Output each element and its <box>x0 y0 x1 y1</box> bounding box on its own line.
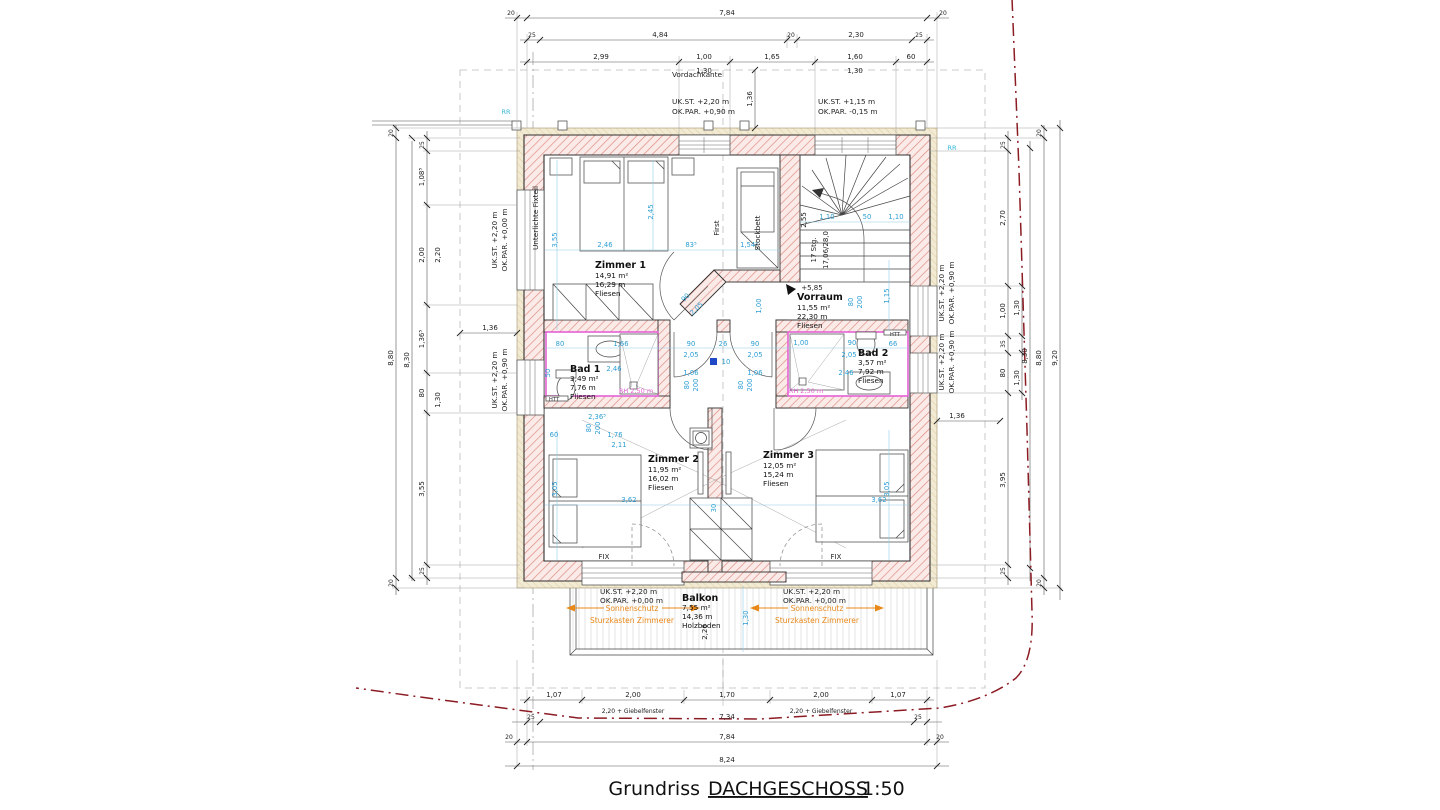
room-floor: Fliesen <box>595 289 621 298</box>
dim-label: 35 <box>1000 340 1007 348</box>
title-prefix: Grundriss <box>608 778 700 800</box>
dim-label: 1,00 <box>999 303 1007 319</box>
dim-label: 1,06 <box>683 369 698 377</box>
level-label: UK.ST. +2,20 m <box>672 97 729 106</box>
dim-label: 30 <box>710 504 718 513</box>
room-floor: Holzboden <box>682 621 721 630</box>
room-perimeter: 16,29 m <box>595 280 625 289</box>
dim-label: 1,66 <box>613 340 628 348</box>
window-right-b <box>910 353 937 393</box>
room-area: 14,91 m² <box>595 271 628 280</box>
window-top-b <box>815 135 896 155</box>
dim-label: 90 <box>751 340 760 348</box>
level-label: OK.PAR. +0,90 m <box>672 107 735 116</box>
room-area: 11,55 m² <box>797 303 830 312</box>
level-label: OK.PAR. +0,90 m <box>500 348 509 411</box>
room-perimeter: 16,02 m <box>648 474 678 483</box>
window-bottom-fix-left <box>582 561 684 585</box>
dim-label: 80 <box>737 381 745 390</box>
dim-label: 2,05 <box>747 351 762 359</box>
dim-label: 9,20 <box>1051 350 1059 366</box>
dim-label: 80 <box>418 389 426 398</box>
room-perimeter: 22,30 m <box>797 312 827 321</box>
dim-label: 1,70 <box>719 691 735 699</box>
walkline-arrow <box>812 188 824 198</box>
dim-label: 50 <box>863 213 872 221</box>
dim-label: 8,80 <box>1035 350 1043 366</box>
dim-label: 1,08⁵ <box>418 168 426 187</box>
dim-label: 2,00 <box>418 247 426 263</box>
floor-plan-svg: 20 7,84 20 25 4,84 20 2,30 25 2,99 1,00 … <box>0 0 1440 810</box>
room-floor: Fliesen <box>858 376 884 385</box>
dim-label: 8,24 <box>719 756 735 764</box>
dim-label: 2,05 <box>841 351 856 359</box>
level-label: UK.ST. +2,20 m <box>937 333 946 390</box>
room-area: 11,95 m² <box>648 465 681 474</box>
stair-count-label: 17 Stg. <box>810 238 818 263</box>
dim-label: 200 <box>594 422 602 435</box>
dim-label: 1,76 <box>607 431 622 439</box>
dim-label: 2,46 <box>838 369 853 377</box>
dim-label: 25 <box>915 32 923 39</box>
dim-label: 60 <box>907 53 916 61</box>
level-label: OK.PAR. +0,90 m <box>947 330 956 393</box>
room-name: Vorraum <box>797 292 843 303</box>
dim-label: 8,80 <box>387 350 395 366</box>
htt-label: HTT <box>549 397 560 403</box>
level-label: OK.PAR. +0,90 m <box>947 261 956 324</box>
dim-label: 25 <box>914 714 922 721</box>
rr-marker-label: RR <box>947 144 957 152</box>
dim-label: 2,20 <box>434 247 442 263</box>
unterlichte-fixteil-label: Unterlichte Fixteil <box>531 186 540 250</box>
dim-label: 4,84 <box>652 31 668 39</box>
dim-label: 20 <box>1036 579 1043 587</box>
dim-label: 1,10 <box>888 213 903 221</box>
window-right-a <box>910 286 937 336</box>
dim-label: 80 <box>999 369 1007 378</box>
dim-label: 80 <box>556 340 565 348</box>
dim-label: 2,20 + Giebelfenster <box>790 708 853 715</box>
dim-label: 200 <box>746 379 754 392</box>
window-top-a <box>679 135 730 155</box>
dim-label: 20 <box>507 10 515 17</box>
dim-label: 1,36 <box>949 412 965 420</box>
sturzkasten-label: Sturzkasten Zimmerer <box>590 616 675 625</box>
room-perimeter: 15,24 m <box>763 470 793 479</box>
dim-label: 8,30 <box>1021 348 1029 364</box>
room-area: 3,57 m² <box>858 358 887 367</box>
dim-label: 2,99 <box>593 53 609 61</box>
drawing-title: Grundriss DACHGESCHOSS 1:50 <box>608 778 904 800</box>
stockbett-label: Stockbett <box>753 215 762 250</box>
dim-label: 2,45 <box>647 204 655 219</box>
room-name: Zimmer 2 <box>648 454 699 465</box>
dim-label: 2,30 <box>848 31 864 39</box>
dim-label: 7,84 <box>719 733 735 741</box>
dim-label: 200 <box>692 379 700 392</box>
dim-labels-top: 20 7,84 20 25 4,84 20 2,30 25 2,99 1,00 … <box>507 9 947 75</box>
vordachkante-label: Vordachkante <box>672 70 723 79</box>
chimney <box>690 428 712 448</box>
dim-label: 80 <box>585 424 593 433</box>
level-label: OK.PAR. -0,15 m <box>818 107 878 116</box>
dim-label: 20 <box>939 10 947 17</box>
dim-label: 1,30 <box>1013 370 1021 386</box>
room-floor: Fliesen <box>763 479 789 488</box>
dim-label: 8,30 <box>403 352 411 368</box>
dim-label: 1,30 <box>1013 300 1021 316</box>
level-label: OK.PAR. +0,00 m <box>500 208 509 271</box>
dim-label: 66 <box>889 340 898 348</box>
dim-label: 1,07 <box>890 691 906 699</box>
dim-label: 90 <box>687 340 696 348</box>
room-perimeter: 7,92 m <box>858 367 884 376</box>
dim-label: 3,05 <box>883 481 891 496</box>
dim-label: 20 <box>505 734 513 741</box>
sonnenschutz-label: Sonnenschutz <box>606 604 659 613</box>
level-label: UK.ST. +2,20 m <box>937 264 946 321</box>
fix-label: FIX <box>599 553 610 561</box>
stair-step-label: 17,06/28,0 <box>822 231 830 269</box>
dim-label: 7,34 <box>719 713 735 721</box>
dim-label: 1,30 <box>847 67 863 75</box>
room-area: 12,05 m² <box>763 461 796 470</box>
dim-label: 1,36 <box>482 324 498 332</box>
room-perimeter: 7,76 m <box>570 383 596 392</box>
dim-label: 1,00 <box>793 339 808 347</box>
room-name: Zimmer 3 <box>763 450 814 461</box>
dim-label: 1,10 <box>819 213 834 221</box>
dim-label: 3,55 <box>418 481 426 497</box>
dim-label: 3,95 <box>999 472 1007 488</box>
room-floor: Fliesen <box>570 392 596 401</box>
dim-label: 1,36 <box>746 91 754 107</box>
dim-label: 7,84 <box>719 9 735 17</box>
dim-label: 2,05 <box>683 351 698 359</box>
dim-label: 3,55 <box>551 232 559 247</box>
level-label: UK.ST. +1,15 m <box>818 97 875 106</box>
dim-label: 20 <box>388 129 395 137</box>
rr-marker-label: RR <box>501 108 511 116</box>
sonnenschutz-label: Sonnenschutz <box>791 604 844 613</box>
dim-label: 20 <box>1036 129 1043 137</box>
room-floor: Fliesen <box>648 483 674 492</box>
dim-label: 20 <box>388 579 395 587</box>
room-height-label: RH 2,50 m <box>619 387 653 395</box>
dim-label: 80 <box>683 381 691 390</box>
dim-labels-left: 20 8,80 20 8,30 25 1,08⁵ 2,00 1,36⁵ 80 3… <box>387 129 442 587</box>
dim-label: 2,00 <box>625 691 641 699</box>
door-zimmer3 <box>774 408 816 450</box>
dim-label: 1,00 <box>755 298 763 313</box>
dim-label: 50 <box>544 369 552 378</box>
sturzkasten-label: Sturzkasten Zimmerer <box>775 616 860 625</box>
dim-label: 26 <box>719 340 728 348</box>
room-label-zimmer2: Zimmer 2 11,95 m² 16,02 m Fliesen <box>648 454 699 492</box>
floor-plan-page: 20 7,84 20 25 4,84 20 2,30 25 2,99 1,00 … <box>0 0 1440 810</box>
room-area: 7,55 m² <box>682 603 711 612</box>
level-label: UK.ST. +2,20 m <box>490 211 499 268</box>
dim-label: 3,62 <box>621 496 636 504</box>
dim-label: 200 <box>856 296 864 309</box>
dim-label: 60 <box>550 431 559 439</box>
dim-label: 1,07 <box>546 691 562 699</box>
fix-label: FIX <box>831 553 842 561</box>
dim-label: 2,11 <box>611 441 626 449</box>
dim-label: 1,30 <box>434 392 442 408</box>
level-label: UK.ST. +2,20 m <box>600 587 657 596</box>
dim-label: 20 <box>787 32 795 39</box>
electric-symbol <box>710 358 717 365</box>
level-marker-arrow <box>786 284 796 295</box>
dim-label: 25 <box>527 714 535 721</box>
room-floor: Fliesen <box>797 321 823 330</box>
dim-label: 10 <box>722 358 731 366</box>
bed-zimmer3 <box>816 450 908 542</box>
htt-label: HTT <box>890 332 901 338</box>
dim-label: 25 <box>419 567 426 575</box>
room-area: 3,49 m² <box>570 374 599 383</box>
dim-label: 1,06 <box>747 369 762 377</box>
room-perimeter: 14,36 m <box>682 612 712 621</box>
dim-label: 1,00 <box>696 53 712 61</box>
dim-label: 1,36⁵ <box>418 330 426 349</box>
dim-label: 2,55 <box>800 212 808 228</box>
stair-level-label: +5,85 <box>801 284 822 292</box>
first-label: First <box>712 220 721 235</box>
dim-labels-bottom: 1,07 2,00 1,70 2,00 1,07 2,20 + Giebelfe… <box>505 691 944 764</box>
dim-label: 90 <box>848 339 857 347</box>
dim-label: 2,00 <box>813 691 829 699</box>
dim-label: 1,65 <box>764 53 780 61</box>
dim-label: 2,36⁵ <box>588 413 606 421</box>
dim-label: 1,15 <box>883 288 891 303</box>
level-label: UK.ST. +2,20 m <box>783 587 840 596</box>
title-name: DACHGESCHOSS <box>708 778 868 800</box>
dim-label: 80 <box>847 298 855 307</box>
dim-label: 1,60 <box>847 53 863 61</box>
bed-zimmer1 <box>550 157 694 251</box>
room-height-label: RH 2,50 m <box>789 387 823 395</box>
dim-label: 2,46 <box>606 365 621 373</box>
dim-label: 2,20 + Giebelfenster <box>602 708 665 715</box>
room-label-zimmer3: Zimmer 3 12,05 m² 15,24 m Fliesen <box>763 450 814 488</box>
dim-label: 25 <box>528 32 536 39</box>
room-name: Zimmer 1 <box>595 260 646 271</box>
dim-label: 2,70 <box>999 210 1007 226</box>
title-scale: 1:50 <box>862 778 905 800</box>
dim-label: 2,46 <box>597 241 612 249</box>
dimension-chains-top <box>505 12 949 135</box>
dim-label: 25 <box>1000 141 1007 149</box>
level-label: UK.ST. +2,20 m <box>490 351 499 408</box>
dim-label: 83⁵ <box>685 241 697 249</box>
dim-label: 1,30 <box>742 610 750 625</box>
dim-label: 25 <box>1000 567 1007 575</box>
window-left-b <box>517 360 544 415</box>
dim-label: 20 <box>936 734 944 741</box>
dim-label: 25 <box>419 141 426 149</box>
dim-label: 3,05 <box>551 481 559 496</box>
